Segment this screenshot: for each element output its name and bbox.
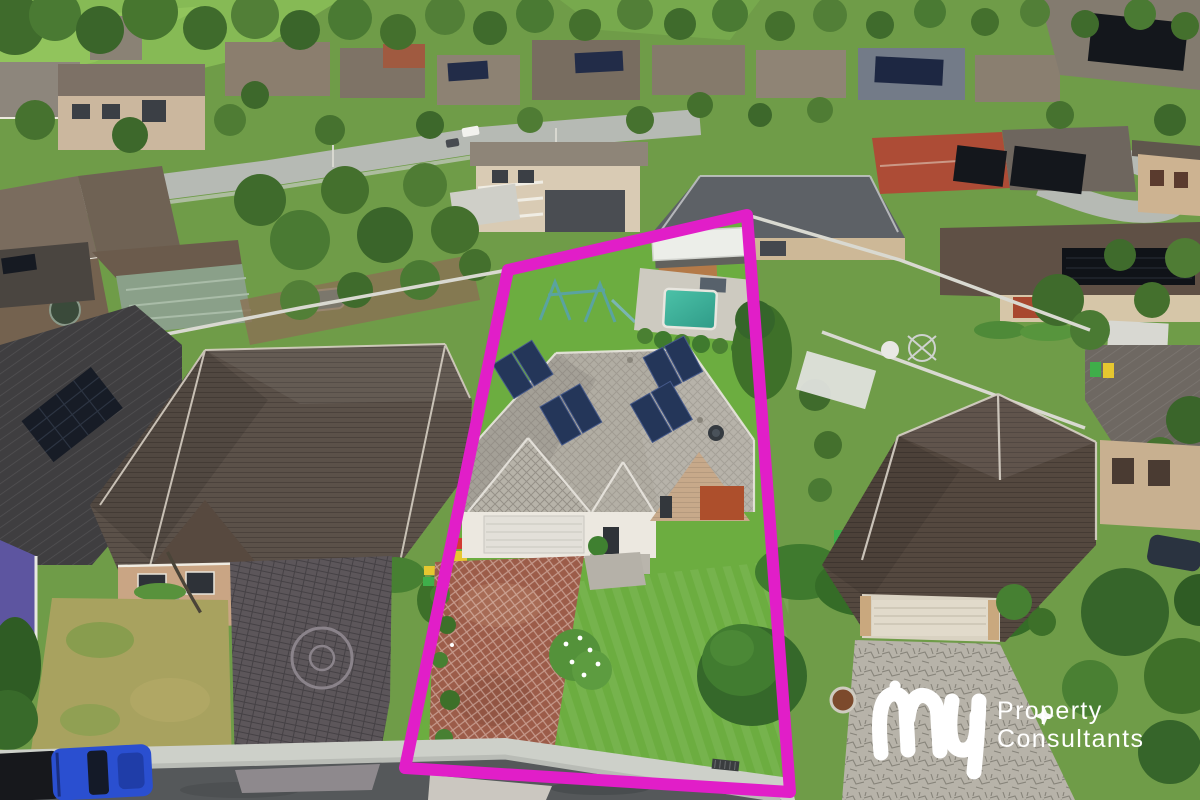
right-neighbor-facade bbox=[860, 594, 1000, 642]
front-path bbox=[584, 552, 646, 590]
potted-palm bbox=[588, 536, 608, 556]
right-garage-door bbox=[872, 600, 988, 636]
aerial-photo: my Property Consultants bbox=[0, 0, 1200, 800]
script-dot bbox=[890, 681, 901, 692]
tan-house-right bbox=[1132, 140, 1200, 216]
watermark-line1: Property bbox=[997, 697, 1103, 725]
round-table bbox=[881, 341, 899, 359]
feature-wall bbox=[700, 486, 744, 520]
swimming-pool bbox=[663, 289, 717, 330]
deck-awning bbox=[545, 190, 625, 232]
brick-house-right-edge bbox=[1100, 440, 1200, 530]
solar-array bbox=[874, 56, 943, 86]
watermark-line2: Consultants bbox=[997, 725, 1144, 753]
solar-array bbox=[953, 145, 1007, 187]
manhole-cover bbox=[831, 688, 855, 712]
left-driveway bbox=[230, 556, 392, 770]
